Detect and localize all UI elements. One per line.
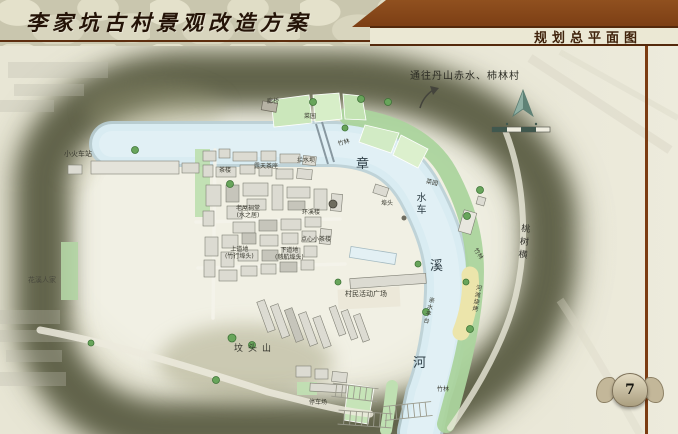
label-veg-garden-right: 菜园 [425,178,438,188]
label-peach-tree-ridge: 桃树横 [515,223,530,263]
label-open-air-tea: 露天茶座 [254,163,278,170]
label-veg-garden-top: 菜园 [304,113,316,120]
label-huanxi-tower: 环溪楼 [302,209,320,216]
page-number: 7 [625,382,635,398]
emblem-stone: 7 [612,373,648,407]
label-dock: 埠头 [381,200,393,207]
slide-title: 李家坑古村景观改造方案 [26,7,312,37]
label-route-note: 通往丹山赤水、柿林村 [410,71,520,83]
title-underline [0,40,372,42]
section-title: 规划总平面图 [534,27,642,46]
label-tea-house: 茶楼 [219,167,231,174]
label-snack-tea-house: 点心小茶楼 [301,236,331,243]
label-fentou-hill: 坟头山 [234,344,276,355]
label-water-wheel: 水车 [413,192,425,216]
label-river-zhang: 章 [356,157,369,173]
label-river-xi: 溪 [430,259,443,275]
label-bamboo-bottom: 竹林 [437,386,449,393]
header-brown-band [352,0,678,27]
label-gallery-bridge: 廊桥 [267,98,279,105]
label-train-station: 小火车站 [64,150,92,158]
label-bamboo-top: 竹林 [337,138,351,148]
section-title-band: 规划总平面图 [370,26,678,46]
label-huaxi-renjia: 花溪人家 [28,276,56,284]
label-waterfront-platform: 亲水平台 [421,296,435,325]
label-activity-square: 村民活动广场 [345,290,387,298]
slide-page: 李家坑古村景观改造方案 规划总平面图 [0,0,678,434]
slide-header: 李家坑古村景观改造方案 规划总平面图 [0,0,678,46]
label-upper-daodi: 上道地 (竹行埠头) [225,246,254,260]
page-number-emblem: 7 [596,368,664,412]
label-river-he: 河 [413,356,426,372]
map-labels: 通往丹山赤水、柿林村 小火车站 花溪人家 廊桥 菜园 竹林 茶楼 露天茶座 拦水… [0,0,678,434]
label-lower-daodi: 下道地 (慈航埠头) [275,247,304,261]
label-bamboo-right: 竹林 [472,247,484,261]
label-parking: 停车场 [309,399,327,406]
label-beach-bbq: 河滩烧烤 [470,284,482,313]
label-ancestral-hall: 老屋祠堂 (水之居) [236,205,260,219]
label-weir: 拦水坝 [297,157,315,164]
